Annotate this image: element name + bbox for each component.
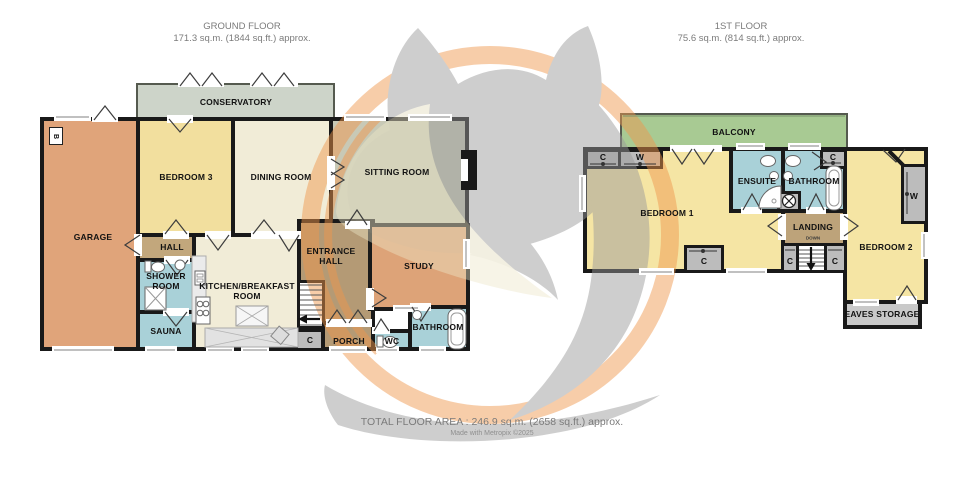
label-bathroom-ff: BATHROOM [788,176,839,186]
label-ensuite: ENSUITE [738,176,776,186]
staircase-down [796,243,827,273]
label-study: STUDY [404,261,434,271]
label-porch: PORCH [333,336,365,346]
label-sitting: SITTING ROOM [365,167,430,177]
label-garage: GARAGE [74,232,113,242]
label-closet-w2: W [910,191,918,201]
b-marker: B [49,127,63,145]
label-bedroom-1: BEDROOM 1 [640,208,693,218]
label-closet-c3: C [787,256,793,266]
total-floor-area: TOTAL FLOOR AREA : 246.9 sq.m. (2658 sq.… [361,416,623,428]
label-hall: HALL [160,242,183,252]
water-tank-box [777,191,801,212]
first-floor-title: 1ST FLOOR [715,21,768,32]
ground-floor-area: 171.3 sq.m. (1844 sq.ft.) approx. [173,33,310,44]
label-dining: DINING ROOM [251,172,312,182]
label-closet-c1: C [600,152,606,162]
label-entrance-hall: ENTRANCE HALL [297,246,365,266]
label-closet-c5: C [701,256,707,266]
label-cupboard-gf: C [307,335,313,345]
label-landing: LANDING [793,222,833,232]
label-conservatory: CONSERVATORY [200,97,272,107]
floorplan-page: GROUND FLOOR 171.3 sq.m. (1844 sq.ft.) a… [0,0,980,477]
label-shower-room: SHOWER ROOM [139,271,193,291]
label-wc: WC [385,336,400,346]
label-sauna: SAUNA [150,326,181,336]
first-floor-area: 75.6 sq.m. (814 sq.ft.) approx. [678,33,805,44]
label-kitchen: KITCHEN/BREAKFAST ROOM [197,281,297,301]
label-closet-c4: C [832,256,838,266]
label-bedroom-3: BEDROOM 3 [159,172,212,182]
ground-floor-title: GROUND FLOOR [203,21,281,32]
metropix-credit: Made with Metropix ©2025 [450,430,533,437]
label-stairs-down: DOWN [806,235,820,240]
label-bedroom-2: BEDROOM 2 [859,242,912,252]
label-eaves-storage: EAVES STORAGE [844,309,919,319]
label-balcony: BALCONY [712,127,755,137]
label-closet-w1: W [636,152,644,162]
label-bathroom-gf: BATHROOM [412,322,463,332]
staircase-up [297,280,325,329]
label-closet-c2: C [830,152,836,162]
